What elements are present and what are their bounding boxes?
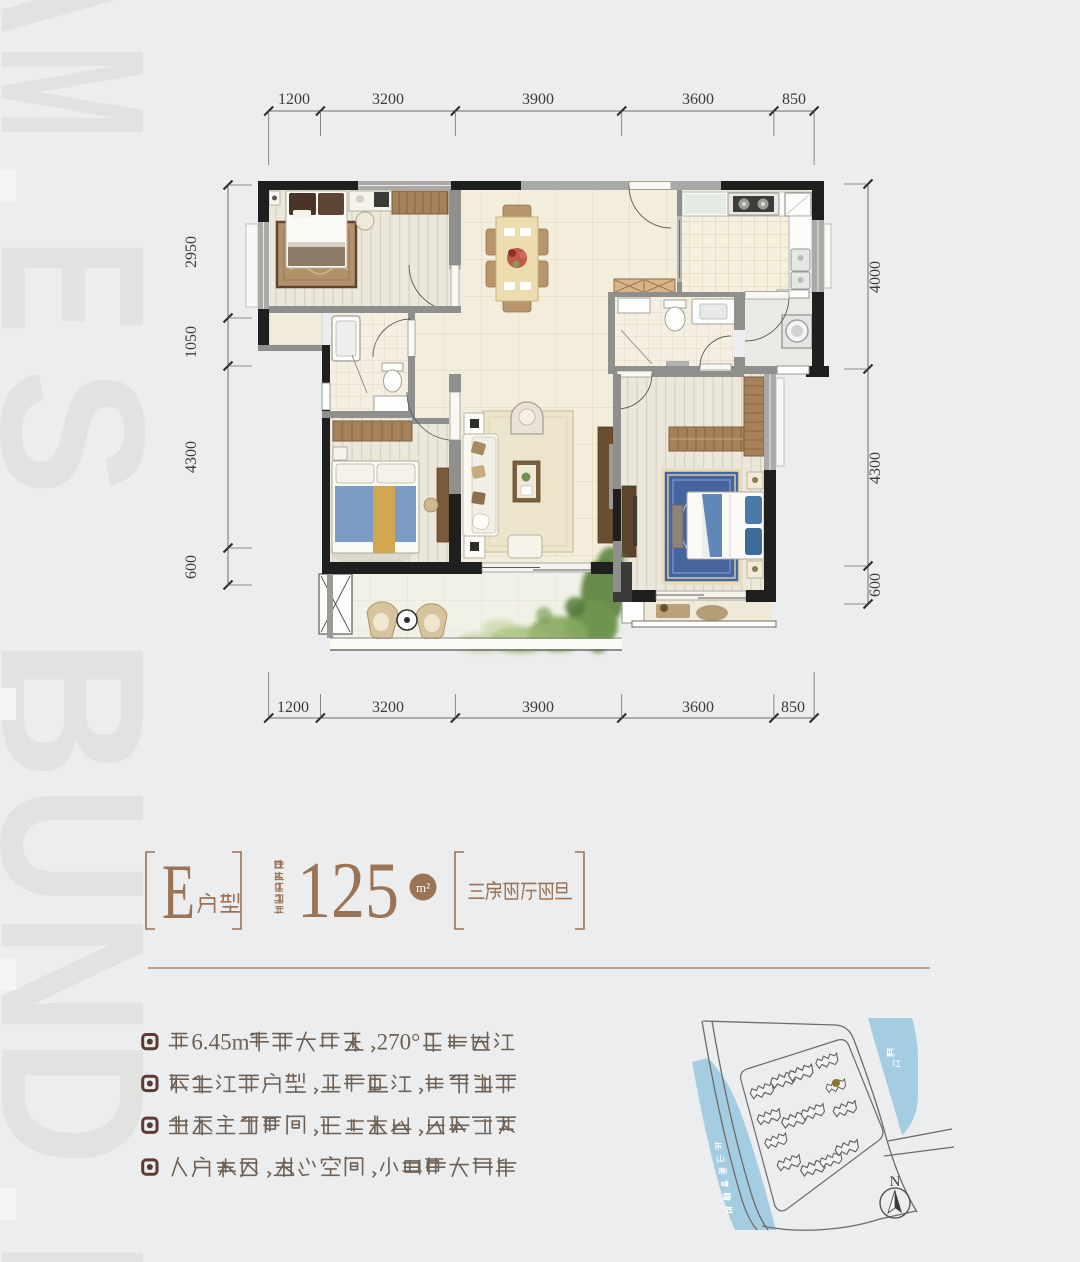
svg-text:E: E xyxy=(0,1244,187,1262)
svg-text:B: B xyxy=(0,638,187,780)
svg-text:600: 600 xyxy=(867,573,884,597)
svg-text:3200: 3200 xyxy=(372,91,404,108)
svg-text:D: D xyxy=(0,1038,187,1166)
svg-text:A: A xyxy=(0,0,187,36)
svg-text:N: N xyxy=(0,913,187,1036)
svg-text:4300: 4300 xyxy=(867,452,884,484)
svg-text:3600: 3600 xyxy=(682,91,714,108)
svg-text:3200: 3200 xyxy=(372,699,404,716)
svg-text:3900: 3900 xyxy=(522,91,554,108)
svg-text:1050: 1050 xyxy=(183,326,200,358)
svg-text:2950: 2950 xyxy=(183,236,200,268)
svg-text:S: S xyxy=(0,368,187,496)
svg-text:M: M xyxy=(0,44,187,140)
svg-text:1200: 1200 xyxy=(277,699,309,716)
svg-text:600: 600 xyxy=(183,555,200,579)
svg-text:U: U xyxy=(0,786,187,906)
svg-text:3600: 3600 xyxy=(682,699,714,716)
svg-text:1200: 1200 xyxy=(278,91,310,108)
svg-text:850: 850 xyxy=(781,699,805,716)
svg-text:E: E xyxy=(162,848,195,935)
svg-text:270°: 270° xyxy=(377,1030,421,1055)
svg-text:4300: 4300 xyxy=(183,441,200,473)
svg-text:4000: 4000 xyxy=(867,261,884,293)
svg-text:3900: 3900 xyxy=(522,699,554,716)
svg-text:6.45m: 6.45m xyxy=(191,1030,249,1055)
svg-text:850: 850 xyxy=(782,91,806,108)
svg-text:125: 125 xyxy=(297,845,399,935)
svg-text:E: E xyxy=(0,238,187,334)
svg-text:m²: m² xyxy=(416,880,430,895)
